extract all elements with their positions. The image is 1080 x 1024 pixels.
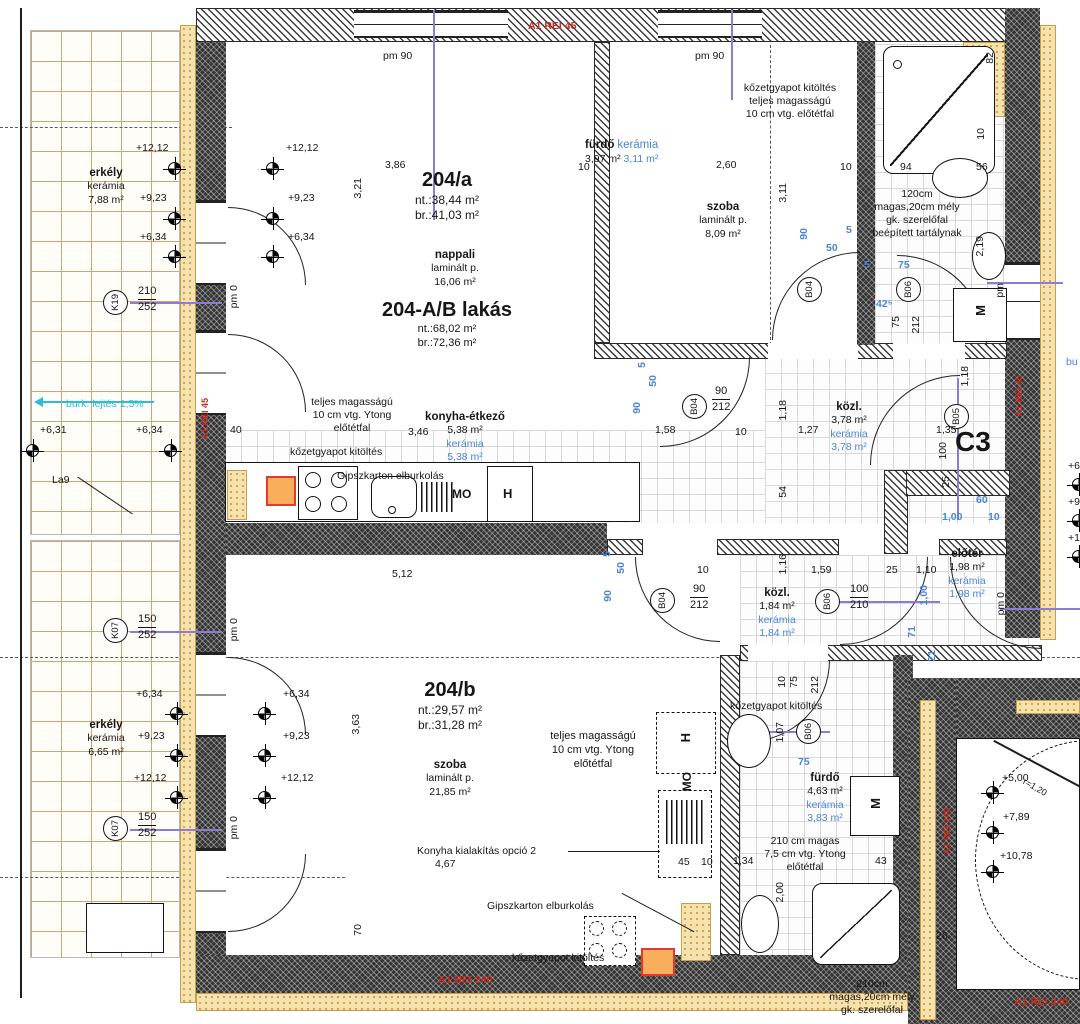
tag-text: B06 xyxy=(803,723,814,740)
note-gypsum-kitchen: Gipszkarton elburkolás xyxy=(337,470,444,483)
tag-text: B05 xyxy=(951,408,962,425)
dim: 56 xyxy=(976,161,988,174)
note-line: kőzetgyapot kitöltés xyxy=(744,82,836,95)
size-top: 150 xyxy=(138,612,156,627)
tag-b06: B06 xyxy=(796,719,821,744)
dim: 1,27 xyxy=(798,424,818,437)
dim-blue: 5 xyxy=(846,224,852,237)
level-label: +6,31 xyxy=(40,424,67,437)
tag-text: K07 xyxy=(110,820,121,837)
dim: 26 xyxy=(936,930,948,943)
window-top-1 xyxy=(354,10,508,38)
note-line: 120cm xyxy=(872,188,961,201)
dim: 1,18 xyxy=(777,400,790,420)
room-finish: kerámia xyxy=(758,614,795,627)
dim: 1,18 xyxy=(959,366,972,386)
room-finish-area: 3,83 m² xyxy=(806,812,843,825)
note-shaft: 210cm magas,20cm mély gk. szerelőfal xyxy=(829,978,914,1017)
note-line: 7,5 cm vtg. Ytong xyxy=(764,848,846,861)
burner xyxy=(305,496,321,512)
dim-blue: 10 xyxy=(988,511,1000,524)
size-top: 150 xyxy=(138,810,156,825)
level-label: +9,23 xyxy=(138,730,165,743)
dim-blue: 90 xyxy=(798,228,811,240)
note-line: 210cm xyxy=(829,978,914,991)
apartment-ab-title: 204-A/B lakás xyxy=(382,298,512,323)
room-name: közl. xyxy=(758,586,795,600)
apartment-ab-net: nt.:68,02 m² xyxy=(382,323,512,337)
tag-text: B06 xyxy=(903,281,914,298)
dim: 10 xyxy=(701,856,713,869)
dim: 70 xyxy=(352,924,365,936)
note-slope: burk. lejtés 1,5% xyxy=(66,398,144,411)
apartment-a-gross: br.:41,03 m² xyxy=(415,208,479,223)
note-rockwool-bath-b: kőzetgyapot kitöltés xyxy=(730,700,822,713)
apartment-ab-gross: br.:72,36 m² xyxy=(382,337,512,351)
appliance-m-label: M xyxy=(868,798,884,809)
level-label: +6,34 xyxy=(288,231,315,244)
balcony-door-b1 xyxy=(196,652,226,737)
room-finish-area: 3,11 m² xyxy=(624,153,659,165)
room-szoba-a: szoba laminált p. 8,09 m² xyxy=(699,200,747,241)
dim-blue: 21 xyxy=(926,650,939,662)
room-area: 3,78 m² xyxy=(830,414,867,427)
option-burner xyxy=(612,921,627,936)
dim: 3,21 xyxy=(352,178,365,198)
dim: 25 xyxy=(940,476,953,488)
dim: 1,10 xyxy=(916,564,936,577)
shaft-insulation-h xyxy=(1016,700,1080,714)
appliance-mo-label: MO xyxy=(680,772,694,791)
dim-blue: 5 xyxy=(601,551,614,557)
room-area: 4,63 m² xyxy=(806,785,843,798)
dim: 5,12 xyxy=(392,568,412,581)
apartment-a-title: 204/a xyxy=(415,168,479,193)
tag-b04: B04 xyxy=(650,588,675,613)
room-name: konyha-étkező xyxy=(425,410,505,424)
leader-line xyxy=(568,851,660,852)
dim: 100 xyxy=(937,442,950,460)
apartment-a-net: nt.:38,44 m² xyxy=(415,193,479,208)
level-marker xyxy=(266,250,279,263)
room-floor: kerámia xyxy=(87,732,124,745)
appliance-m-label: M xyxy=(973,305,989,316)
dim: 43 xyxy=(875,855,887,868)
room-name: erkély xyxy=(87,166,124,180)
level-label: +6,34 xyxy=(136,688,163,701)
dim-blue: 42⁵ xyxy=(876,298,893,311)
dim-blue: 60 xyxy=(976,494,988,507)
level-marker xyxy=(164,444,177,457)
dim: 54 xyxy=(777,486,790,498)
level-label: +12,12 xyxy=(136,142,168,155)
dim: 4,67 xyxy=(435,858,455,871)
note-line: 10 cm vtg. Ytong xyxy=(311,409,393,422)
tag-k07: K07 xyxy=(103,816,128,841)
tag-text: B04 xyxy=(689,398,700,415)
wall-c3-v xyxy=(884,470,908,554)
note-kitchen-option: Konyha kialakítás opció 2 xyxy=(417,845,536,858)
dim-blue: 1,00 xyxy=(942,511,962,524)
slope-arrow-line xyxy=(42,401,154,403)
level-marker xyxy=(258,707,271,720)
dim: 45 xyxy=(678,856,690,869)
room-name: erkély xyxy=(87,718,124,732)
door-gap xyxy=(768,343,858,359)
dim-blue: 5 xyxy=(636,362,649,368)
level-marker xyxy=(986,865,999,878)
tag-text: B04 xyxy=(657,592,668,609)
burner xyxy=(305,472,321,488)
note-la9: La9 xyxy=(52,474,70,487)
room-area: 6,65 m² xyxy=(87,746,124,759)
room-name: közl. xyxy=(830,400,867,414)
note-line: előtétfal xyxy=(311,422,393,435)
size-bottom: 252 xyxy=(138,627,156,643)
size-bottom: 212 xyxy=(690,597,708,613)
level-label: +6,34 xyxy=(140,231,167,244)
level-marker xyxy=(170,791,183,804)
dim: 1,58 xyxy=(655,424,675,437)
marker-line xyxy=(1000,608,1080,610)
dim: 1,59 xyxy=(811,564,831,577)
level-label: +9,23 xyxy=(140,192,167,205)
room-floor: laminált p. xyxy=(699,214,747,227)
size-top: 90 xyxy=(690,582,708,597)
appliance-h-label: H xyxy=(678,733,694,742)
door-size: 90 212 xyxy=(690,582,708,614)
dim: 212 xyxy=(809,676,822,694)
room-furdo-b: fürdő 4,63 m² kerámia 3,83 m² xyxy=(806,771,843,825)
pm-label: pm 90 xyxy=(383,50,412,63)
room-name: fürdő xyxy=(806,771,843,785)
room-name: fürdő xyxy=(585,139,614,151)
level-marker xyxy=(266,162,279,175)
note-rockwool-top: kőzetgyapot kitöltés teljes magasságú 10… xyxy=(744,82,836,121)
room-floor: kerámia xyxy=(87,180,124,193)
tag-b04: B04 xyxy=(797,277,822,302)
size-bottom: 252 xyxy=(138,825,156,841)
dim: 10 xyxy=(776,676,789,688)
pm-label: pm 0 xyxy=(995,592,1008,615)
washbasin-b xyxy=(727,714,771,768)
room-name: nappali xyxy=(431,248,479,262)
room-finish: kerámia xyxy=(806,799,843,812)
level-label: +12,12 xyxy=(134,772,166,785)
level-label: +12,12 xyxy=(286,142,318,155)
dim: 10 xyxy=(840,161,852,174)
tag-text: B04 xyxy=(804,281,815,298)
dim: 3,46 xyxy=(408,426,428,439)
room-finish: kerámia xyxy=(948,575,985,588)
size-bottom: 210 xyxy=(850,597,868,613)
size-bottom: 212 xyxy=(712,399,730,415)
appliance-h-label: H xyxy=(503,486,512,502)
room-finish: kerámia xyxy=(830,428,867,441)
level-marker xyxy=(170,749,183,762)
level-label: +6,34 xyxy=(283,688,310,701)
dim: 75 xyxy=(890,316,903,328)
fire-rating-top: A1 REI 45 xyxy=(528,20,576,33)
fire-rating-wall-left: A1 REI 45 xyxy=(200,398,211,440)
room-name: előtér xyxy=(948,547,985,561)
wall-top xyxy=(196,8,1040,42)
level-label: +12,12 xyxy=(281,772,313,785)
apartment-ab-block: 204-A/B lakás nt.:68,02 m² br.:72,36 m² xyxy=(382,298,512,351)
room-name: szoba xyxy=(426,758,474,772)
level-label-partial: +1 xyxy=(1068,532,1080,545)
insulation-bottom xyxy=(196,993,908,1011)
room-area: 21,85 m² xyxy=(426,786,474,799)
note-gypsum-bottom: Gipszkarton elburkolás xyxy=(487,900,594,913)
tag-k07-size: 150 252 xyxy=(138,612,156,644)
size-top: 100 xyxy=(850,582,868,597)
door-gap xyxy=(893,343,965,359)
dim-blue: 75 xyxy=(798,756,810,769)
pm-label: pm 90 xyxy=(695,50,724,63)
planter-box xyxy=(86,903,164,953)
note-tank: 120cm magas,20cm mély gk. szerelőfal beé… xyxy=(872,188,961,241)
room-furdo-a: fürdő kerámia 3,97 m² 3,11 m² xyxy=(585,139,658,165)
dim: 82 xyxy=(984,52,997,64)
dim-blue: 71 xyxy=(906,626,919,638)
room-floor: laminált p. xyxy=(426,772,474,785)
dim: 10 xyxy=(697,564,709,577)
dim-blue: 90 xyxy=(631,402,644,414)
note-rockwool-bottom: kőzetgyapot kitöltés xyxy=(512,952,604,965)
tag-k19-size: 210 252 xyxy=(138,284,156,316)
level-marker xyxy=(258,749,271,762)
room-eloter: előtér 1,98 m² kerámia 1,98 m² xyxy=(948,547,985,601)
duct-marker xyxy=(641,948,675,976)
fire-rating-shaft: A1 REI 240 xyxy=(942,808,953,855)
level-marker xyxy=(168,162,181,175)
room-erkely-b: erkély kerámia 6,65 m² xyxy=(87,718,124,759)
room-area: 7,88 m² xyxy=(87,194,124,207)
level-marker xyxy=(1072,514,1080,527)
dim: 3,63 xyxy=(350,714,363,734)
room-finish: kerámia xyxy=(425,438,505,451)
dim: 1,34 xyxy=(733,855,753,868)
shaft-insulation-v xyxy=(920,700,936,1020)
dim: 3,11 xyxy=(777,183,790,203)
room-finish: kerámia xyxy=(617,139,658,151)
balcony-door-b2 xyxy=(196,848,226,933)
dim: 2,00 xyxy=(774,882,787,902)
level-marker xyxy=(168,250,181,263)
tag-k07-size: 150 252 xyxy=(138,810,156,842)
door-arc xyxy=(228,334,306,412)
note-line: teljes magasságú xyxy=(311,396,393,409)
dim-blue: 50 xyxy=(615,562,628,574)
pm-label: pm 0 xyxy=(228,618,241,641)
note-frontwall-b: teljes magasságú 10 cm vtg. Ytong előtét… xyxy=(550,730,636,771)
tag-k07: K07 xyxy=(103,618,128,643)
dim: 10 xyxy=(578,161,590,174)
note-line: gk. szerelőfal xyxy=(829,1004,914,1017)
sink-drain xyxy=(388,506,396,514)
note-line: előtétfal xyxy=(550,758,636,772)
option-burner xyxy=(589,921,604,936)
level-label: +9,23 xyxy=(288,192,315,205)
level-marker xyxy=(26,444,39,457)
level-label: +7,89 xyxy=(1003,811,1030,824)
note-line: beépített tartálynak xyxy=(872,227,961,240)
tag-k19: K19 xyxy=(103,290,128,315)
room-kozl-b: közl. 1,84 m² kerámia 1,84 m² xyxy=(758,586,795,640)
room-finish-area: 1,84 m² xyxy=(758,627,795,640)
window-right xyxy=(1005,262,1040,340)
shower-diagonal-a xyxy=(890,54,988,166)
room-finish-area: 1,98 m² xyxy=(948,588,985,601)
note-kitchen-frontwall: teljes magasságú 10 cm vtg. Ytong előtét… xyxy=(311,396,393,435)
pillar xyxy=(681,903,711,961)
fire-rating-bottom-right: A1 REI 240 xyxy=(1014,996,1068,1009)
apartment-b-net: nt.:29,57 m² xyxy=(418,703,482,718)
room-area: 16,06 m² xyxy=(431,276,479,289)
wall-nappali-szoba xyxy=(594,42,610,343)
room-nappali: nappali laminált p. 16,06 m² xyxy=(431,248,479,289)
tag-b06: B06 xyxy=(896,277,921,302)
window-top-2 xyxy=(658,10,762,38)
balcony-top-floor xyxy=(30,30,180,535)
dim: 212 xyxy=(910,316,923,334)
level-label: +6,34 xyxy=(136,424,163,437)
dim: 2,60 xyxy=(716,159,736,172)
level-marker xyxy=(170,707,183,720)
door-arc xyxy=(228,854,306,932)
wall-divider xyxy=(225,523,607,555)
room-finish-area: 5,38 m² xyxy=(425,451,505,464)
toilet-b xyxy=(741,895,779,953)
room-area: 5,38 m² xyxy=(425,424,505,437)
apartment-b-title: 204/b xyxy=(418,678,482,703)
tag-b04: B04 xyxy=(682,394,707,419)
fire-rating-bottom: A1 REI 240 xyxy=(438,974,492,987)
dim: 75 xyxy=(788,676,801,688)
note-line: teljes magasságú xyxy=(550,730,636,744)
room-area: 3,97 m² xyxy=(585,153,621,165)
dim-blue: 50 xyxy=(826,242,838,255)
appliance-mo-label: MO xyxy=(452,487,471,501)
level-marker xyxy=(168,212,181,225)
sink-drainer xyxy=(421,482,455,512)
room-szoba-b: szoba laminált p. 21,85 m² xyxy=(426,758,474,799)
shower-drain-a xyxy=(893,60,902,69)
door-size: 90 212 xyxy=(712,384,730,416)
dim: 1,16 xyxy=(777,554,790,574)
note-line: teljes magasságú xyxy=(744,95,836,108)
dim: 2,19 xyxy=(974,236,987,256)
level-marker xyxy=(266,212,279,225)
note-line: gk. szerelőfal xyxy=(872,214,961,227)
pillar xyxy=(227,470,247,520)
note-wall210: 210 cm magas 7,5 cm vtg. Ytong előtétfal xyxy=(764,835,846,874)
dim-blue: 5 xyxy=(864,259,870,272)
balcony-door-a1 xyxy=(196,200,226,285)
wall-divider-3 xyxy=(717,539,839,555)
note-line: magas,20cm mély xyxy=(872,201,961,214)
note-line: magas,20cm mély xyxy=(829,991,914,1004)
dim-blue: 75 xyxy=(898,259,910,272)
site-boundary-line xyxy=(20,8,22,998)
level-marker xyxy=(258,791,271,804)
slope-arrow-head xyxy=(34,397,43,407)
room-kozl-a: közl. 3,78 m² kerámia 3,78 m² xyxy=(830,400,867,454)
dim-blue: 50 xyxy=(647,375,660,387)
note-line: 10 cm vtg. előtétfal xyxy=(744,108,836,121)
level-label: +9,23 xyxy=(283,730,310,743)
insulation-right xyxy=(1040,25,1056,640)
room-finish-area: 3,78 m² xyxy=(830,441,867,454)
dim: 10 xyxy=(735,426,747,439)
level-label-partial: +6 xyxy=(1068,460,1080,473)
option-drainer xyxy=(666,800,706,844)
shaft-c3-label: C3 xyxy=(955,425,991,459)
level-label-partial: +9 xyxy=(1068,496,1080,509)
marker-line xyxy=(731,10,733,100)
duct-marker xyxy=(266,476,296,506)
tag-b06: B06 xyxy=(815,589,840,614)
note-rockwool-kitchen: kőzetgyapot kitöltés xyxy=(290,446,382,459)
level-marker xyxy=(1072,478,1080,491)
shower-diagonal-b xyxy=(820,890,892,958)
room-floor: laminált p. xyxy=(431,262,479,275)
note-line: 210 cm magas xyxy=(764,835,846,848)
apartment-a-block: 204/a nt.:38,44 m² br.:41,03 m² xyxy=(415,168,479,223)
dim: 25 xyxy=(886,564,898,577)
level-marker xyxy=(986,786,999,799)
note-line: 10 cm vtg. Ytong xyxy=(550,744,636,758)
dim: 1,35 xyxy=(936,424,956,437)
room-name: szoba xyxy=(699,200,747,214)
dim: 3,86 xyxy=(385,159,405,172)
door-gap xyxy=(748,645,828,661)
note-bu-partial: bu xyxy=(1066,356,1078,369)
room-konyha: konyha-étkező 5,38 m² kerámia 5,38 m² xyxy=(425,410,505,464)
fire-rating-wall-right: A1 REI 45 xyxy=(1014,375,1025,417)
door-size: 100 210 xyxy=(850,582,868,614)
room-area: 1,84 m² xyxy=(758,600,795,613)
pm-label: pm xyxy=(994,283,1007,298)
dim-blue: 1,00 xyxy=(918,585,931,605)
size-top: 210 xyxy=(138,284,156,299)
pm-label: pm 0 xyxy=(228,816,241,839)
room-area: 8,09 m² xyxy=(699,228,747,241)
option-burner xyxy=(612,943,627,958)
note-line: előtétfal xyxy=(764,861,846,874)
dim: 40 xyxy=(230,424,242,437)
dim: 1,07 xyxy=(774,722,787,742)
tag-text: B06 xyxy=(822,593,833,610)
level-marker xyxy=(986,826,999,839)
level-marker xyxy=(1072,550,1080,563)
tag-text: K07 xyxy=(110,622,121,639)
option-fridge xyxy=(656,712,716,774)
pm-label: pm 0 xyxy=(228,285,241,308)
dim: 94 xyxy=(900,161,912,174)
dim-blue: 90 xyxy=(602,590,615,602)
room-area: 1,98 m² xyxy=(948,561,985,574)
floor-plan: A1 REI 45 A1 REI 240 A1 REI 240 A1 REI 4… xyxy=(0,0,1080,1024)
burner xyxy=(331,496,347,512)
insulation-left xyxy=(180,25,196,1003)
size-top: 90 xyxy=(712,384,730,399)
apartment-b-gross: br.:31,28 m² xyxy=(418,718,482,733)
apartment-b-block: 204/b nt.:29,57 m² br.:31,28 m² xyxy=(418,678,482,733)
tag-text: K19 xyxy=(110,294,121,311)
room-erkely-a: erkély kerámia 7,88 m² xyxy=(87,166,124,207)
